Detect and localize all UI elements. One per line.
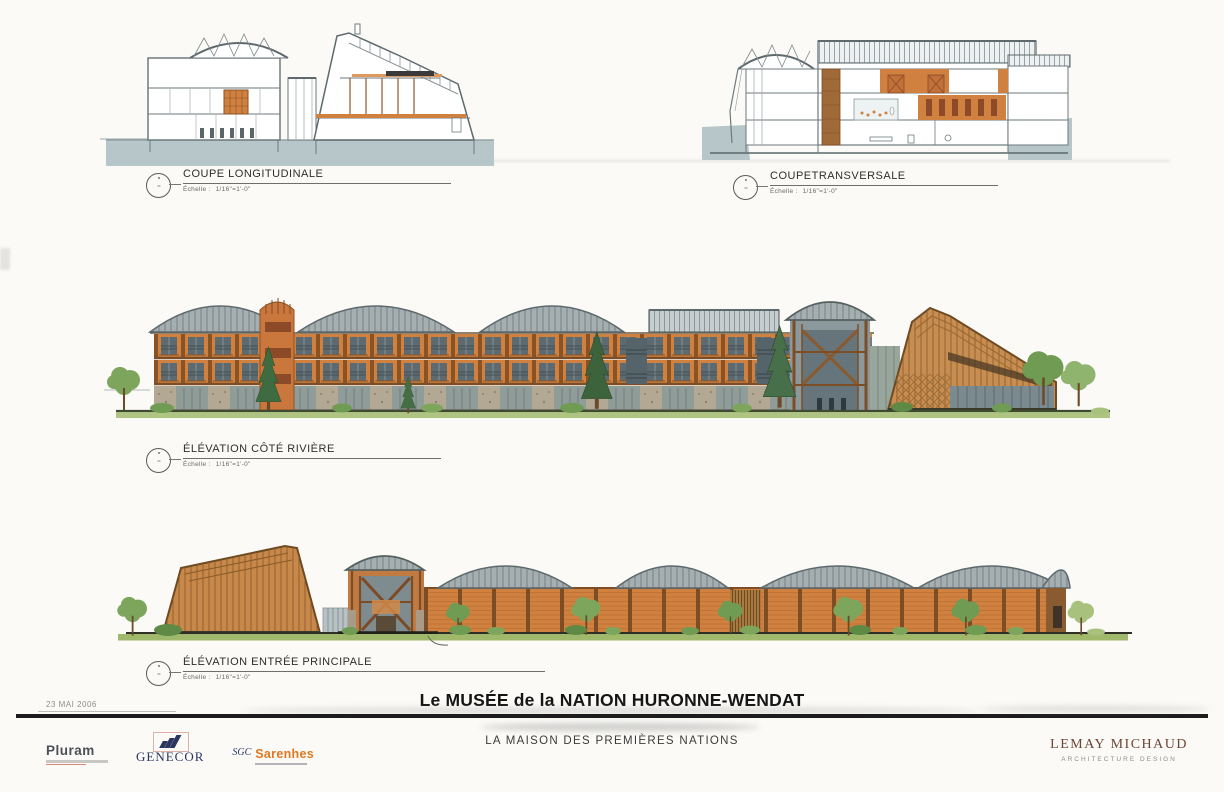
presentation-board: COUPE LONGITUDINALE Échelle : 1/16"=1'-0… (0, 0, 1224, 792)
brush-smudge (980, 706, 1210, 712)
drawing-reference-icon (146, 661, 171, 686)
drawing-title: COUPE LONGITUDINALE (183, 168, 451, 184)
architect-signature: LEMAY MICHAUD ARCHITECTURE DESIGN (1050, 737, 1188, 763)
pluram-tagline-bar (46, 760, 108, 763)
firm-name: LEMAY MICHAUD (1050, 737, 1188, 753)
drawing-reference-icon (146, 448, 171, 473)
drawing-scale: Échelle : 1/16"=1'-0" (770, 188, 998, 195)
brush-smudge (480, 723, 760, 731)
sarenhes-tagline-bar (255, 763, 307, 766)
logo-genecor: GENECOR (136, 735, 204, 765)
section-body (746, 63, 1068, 153)
drawing-reference-icon (733, 175, 758, 200)
drawing-title: COUPETRANSVERSALE (770, 170, 998, 186)
river-side-elevation-drawing (102, 290, 1122, 425)
genecor-accent-box (153, 732, 189, 752)
firm-tagline: ARCHITECTURE DESIGN (1050, 756, 1188, 763)
section-link (288, 78, 316, 140)
sloped-timber-hall (158, 542, 328, 636)
date-stamp: 23 MAI 2006 (46, 700, 97, 709)
reference-leader-line (756, 186, 768, 187)
reference-leader-line (169, 184, 181, 185)
transverse-section-drawing (702, 25, 1072, 160)
sarenhes-wordmark: Sarenhes (255, 747, 314, 761)
section-left-building (148, 58, 280, 140)
flat-roof-section (649, 310, 779, 332)
consultant-logos: Pluram GENECOR SGC Sarenhes (46, 735, 314, 765)
longitudinal-section-drawing (100, 22, 500, 167)
title-divider-line (16, 714, 1208, 718)
logo-sgc-sarenhes: SGC Sarenhes (232, 747, 314, 766)
drawing-title: ÉLÉVATION ENTRÉE PRINCIPALE (183, 656, 545, 672)
main-entrance-elevation-drawing (98, 538, 1138, 653)
section-ground (100, 139, 494, 166)
reference-leader-line (169, 672, 181, 673)
drawing-scale: Échelle : 1/16"=1'-0" (183, 186, 451, 193)
reference-leader-line (169, 459, 181, 460)
barrel-roofs (150, 306, 624, 332)
label-coupe-longitudinale: COUPE LONGITUDINALE Échelle : 1/16"=1'-0… (146, 168, 451, 198)
pluram-accent-line (46, 764, 86, 765)
entrance-pavilion (786, 302, 900, 410)
genecor-sail-icon (159, 735, 181, 748)
date-rule (38, 711, 176, 712)
sgc-prefix: SGC (232, 747, 251, 758)
entrance-pavilion (323, 556, 424, 633)
drawing-reference-icon (146, 173, 171, 198)
scan-smudge (0, 248, 10, 270)
logo-pluram: Pluram (46, 743, 108, 765)
drawing-scale: Échelle : 1/16"=1'-0" (183, 674, 545, 681)
drawing-title: ÉLÉVATION CÔTÉ RIVIÈRE (183, 443, 441, 459)
label-elevation-cote-riviere: ÉLÉVATION CÔTÉ RIVIÈRE Échelle : 1/16"=1… (146, 443, 441, 473)
pluram-wordmark: Pluram (46, 743, 95, 758)
label-elevation-entree-principale: ÉLÉVATION ENTRÉE PRINCIPALE Échelle : 1/… (146, 656, 545, 686)
brush-smudge (240, 707, 980, 714)
drawing-scale: Échelle : 1/16"=1'-0" (183, 461, 441, 468)
label-coupe-transversale: COUPETRANSVERSALE Échelle : 1/16"=1'-0" (733, 170, 998, 200)
